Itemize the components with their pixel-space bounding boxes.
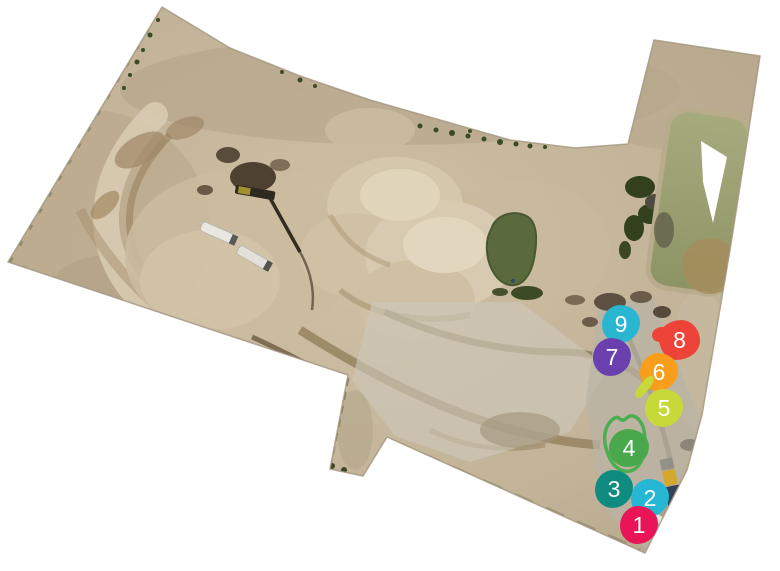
- marker-label: 6: [653, 361, 666, 384]
- marker-label: 4: [623, 437, 636, 460]
- marker-label: 2: [644, 487, 657, 510]
- marker-label: 9: [615, 313, 628, 336]
- marker-label: 3: [608, 478, 621, 501]
- marker-label: 5: [658, 397, 671, 420]
- drone-map-canvas[interactable]: 123456789: [0, 0, 780, 571]
- marker-label: 7: [606, 346, 619, 369]
- marker-label: 1: [633, 514, 646, 537]
- marker-label: 8: [673, 329, 686, 352]
- pond: [487, 213, 536, 285]
